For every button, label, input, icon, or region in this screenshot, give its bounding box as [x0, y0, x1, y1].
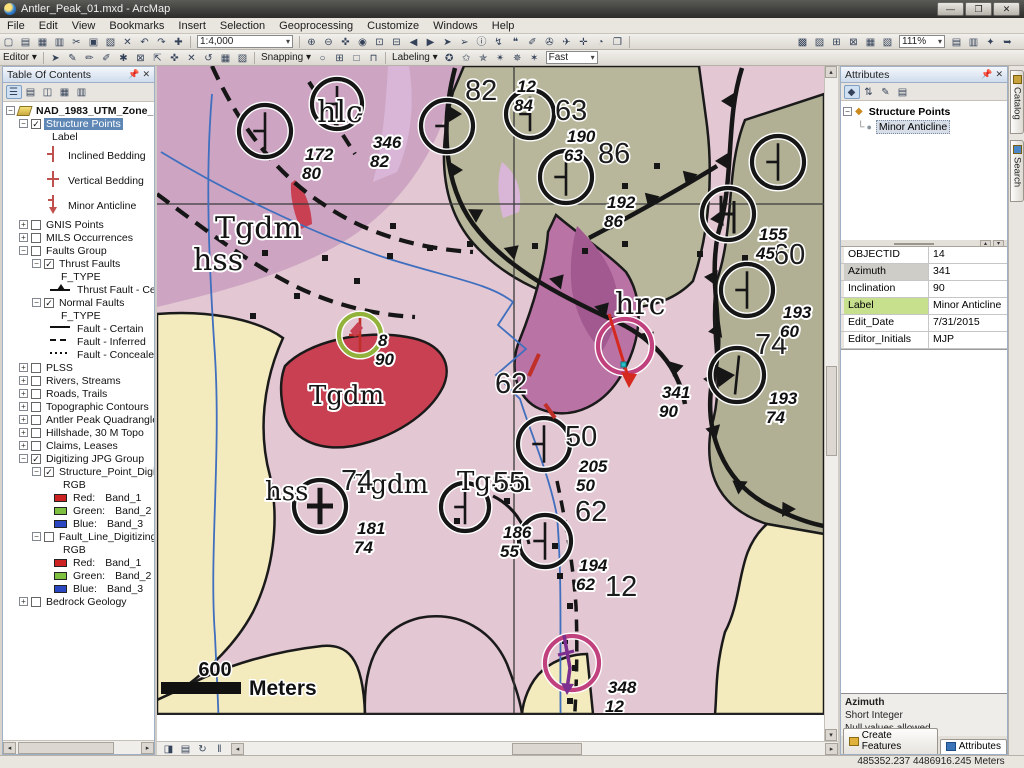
claim-marker — [572, 665, 578, 671]
visibility-checkbox[interactable] — [31, 246, 41, 256]
field-value-cell[interactable]: 14 — [929, 247, 1007, 263]
list-by-selection-icon[interactable]: ▦ — [57, 85, 73, 99]
field-options-icon[interactable]: ✎ — [878, 85, 894, 99]
image-analysis-icon[interactable]: ▧ — [880, 35, 896, 49]
menu-edit[interactable]: Edit — [32, 19, 65, 33]
visibility-checkbox[interactable] — [31, 428, 41, 438]
field-value-cell[interactable]: Minor Anticline — [929, 298, 1007, 314]
snap-vertex-dot — [621, 362, 626, 367]
toc-options-icon[interactable]: ▥ — [74, 85, 90, 99]
map-scale-combo[interactable]: 1:4,000 ▾ — [197, 35, 293, 48]
collapse-icon[interactable]: − — [32, 259, 41, 268]
strike-dip-label: 74 — [766, 408, 785, 427]
toc-item-faults-group[interactable]: −Faults Group — [3, 244, 154, 257]
toc-item-label[interactable]: Inclined Bedding — [66, 150, 148, 162]
field-name-cell[interactable]: OBJECTID — [841, 247, 929, 263]
table-of-contents-panel: Table Of Contents 📌 ✕ ☰▤◫▦▥ −NAD_1983_UT… — [2, 66, 155, 755]
scroll-right-icon[interactable]: ▸ — [141, 742, 154, 754]
field-value-cell[interactable]: MJP — [929, 332, 1007, 348]
claim-marker — [294, 293, 300, 299]
endpoint-arc-icon[interactable]: ✐ — [98, 51, 114, 65]
identify-icon[interactable]: ⓘ — [474, 35, 490, 49]
copy-icon[interactable]: ▣ — [86, 35, 102, 49]
toc-item-plss[interactable]: +PLSS — [3, 361, 154, 374]
attribute-row-label[interactable]: LabelMinor Anticline — [841, 298, 1007, 315]
section-number-label: 63 — [555, 95, 587, 127]
maximize-button[interactable]: ❐ — [965, 2, 992, 16]
strike-dip-label: 62 — [576, 575, 595, 594]
visibility-checkbox[interactable]: ✓ — [31, 119, 41, 129]
label-manager-icon[interactable]: ✪ — [441, 51, 457, 65]
toc-item-label[interactable]: Hillshade, 30 M Topo — [44, 427, 146, 439]
toc-item-structure-point-digitizing-jpg[interactable]: −✓Structure_Point_Digitizing.jpg — [3, 465, 154, 478]
visibility-checkbox[interactable]: ✓ — [44, 298, 54, 308]
toc-item-green-[interactable]: Green:Band_2 — [3, 569, 154, 582]
visibility-checkbox[interactable]: ✓ — [44, 467, 54, 477]
expand-icon[interactable]: + — [19, 363, 28, 372]
pin-icon[interactable]: 📌 — [981, 69, 992, 80]
field-value-cell[interactable]: 341 — [929, 264, 1007, 280]
fixed-zoom-out-icon[interactable]: ⊟ — [389, 35, 405, 49]
model-builder-icon[interactable]: ⊠ — [846, 35, 862, 49]
toc-item-green-[interactable]: Green:Band_2 — [3, 504, 154, 517]
attribute-row-editor_initials[interactable]: Editor_InitialsMJP — [841, 332, 1007, 349]
paste-icon[interactable]: ▧ — [103, 35, 119, 49]
pause-drawing-icon[interactable]: ‖ — [212, 742, 228, 756]
claim-marker — [262, 250, 268, 256]
find-icon[interactable]: ✇ — [542, 35, 558, 49]
expand-up-icon[interactable]: ▴ — [980, 240, 991, 247]
map-canvas[interactable]: hlcTgdmhsshrcTgdmhssTgdmTgam826386607462… — [157, 66, 824, 741]
tab-catalog[interactable]: Catalog — [1010, 70, 1024, 134]
vertex-snap-icon[interactable]: □ — [349, 51, 365, 65]
attribute-row-objectid[interactable]: OBJECTID14 — [841, 247, 1007, 264]
edit-annotation-icon[interactable]: ✎ — [64, 51, 80, 65]
band-name: Band_3 — [107, 583, 143, 595]
close-icon[interactable]: ✕ — [142, 69, 150, 80]
toc-item-structure-points[interactable]: −✓Structure Points — [3, 117, 154, 130]
zoom-out-icon[interactable]: ⊖ — [321, 35, 337, 49]
list-by-visibility-icon[interactable]: ◫ — [40, 85, 56, 99]
menu-selection[interactable]: Selection — [213, 19, 272, 33]
toc-item-label[interactable]: Structure Points — [44, 118, 123, 130]
pause-labeling-icon[interactable]: ✵ — [509, 51, 525, 65]
lock-raster-icon[interactable]: ✦ — [983, 35, 999, 49]
attributes-panel: Attributes 📌 ✕ ◆⇅✎▤ − ◆ Structure Points… — [840, 66, 1008, 755]
label-weight-icon[interactable]: ✯ — [475, 51, 491, 65]
zoom-in-icon[interactable]: ⊕ — [304, 35, 320, 49]
toc-item-label[interactable]: RGB — [61, 479, 88, 491]
toc-item-rgb[interactable]: RGB — [3, 543, 154, 556]
red-band-swatch — [54, 494, 67, 502]
toc-item-label[interactable]: Minor Anticline — [66, 200, 138, 212]
section-number-label: 12 — [605, 571, 637, 603]
edit-tool-icon[interactable]: ➤ — [47, 51, 63, 65]
collapse-icon[interactable]: − — [32, 467, 41, 476]
toc-item-blue-[interactable]: Blue:Band_3 — [3, 582, 154, 595]
toc-item-label[interactable]: Red: — [71, 492, 97, 504]
green-band-swatch — [54, 507, 67, 515]
fixed-zoom-in-icon[interactable]: ⊡ — [372, 35, 388, 49]
attributes-feature-label[interactable]: Minor Anticline — [876, 120, 950, 134]
undo-icon[interactable]: ↶ — [137, 35, 153, 49]
toc-item-f-type[interactable]: F_TYPE — [3, 270, 154, 283]
strike-dip-label: 74 — [354, 538, 373, 557]
layout-options-icon[interactable]: ▤ — [895, 85, 911, 99]
print-icon[interactable]: ▥ — [52, 35, 68, 49]
label-engine-combo[interactable]: Fast ▾ — [546, 51, 598, 64]
field-name-cell[interactable]: Inclination — [841, 281, 929, 297]
menu-help[interactable]: Help — [485, 19, 522, 33]
viewer-window-icon[interactable]: ❐ — [610, 35, 626, 49]
toc-item-minor-anticline[interactable]: Minor Anticline — [3, 193, 154, 218]
collapse-icon[interactable]: − — [32, 298, 41, 307]
toc-item-label[interactable]: Digitizing JPG Group — [44, 453, 146, 465]
map-hscroll-thumb[interactable] — [512, 743, 582, 755]
toc-item-label[interactable]: Thrust Faults — [57, 258, 122, 270]
raster-cleanup-icon[interactable]: ▥ — [966, 35, 982, 49]
expand-icon[interactable]: + — [19, 415, 28, 424]
toc-item-label[interactable]: Label — [50, 131, 80, 143]
toc-item-vertical-bedding[interactable]: Vertical Bedding — [3, 168, 154, 193]
minimize-button[interactable]: — — [937, 2, 964, 16]
toc-item-inclined-bedding[interactable]: Inclined Bedding — [3, 143, 154, 168]
attributes-tree-feature[interactable]: └ ● Minor Anticline — [843, 119, 1005, 134]
refresh-view-icon[interactable]: ↻ — [195, 742, 211, 756]
close-icon[interactable]: ✕ — [995, 69, 1003, 80]
pan-hand-icon[interactable]: ✜ — [338, 35, 354, 49]
toc-item-label[interactable]: Green: — [71, 505, 107, 517]
catalog-window-icon[interactable]: ▩ — [795, 35, 811, 49]
scroll-left-icon[interactable]: ◂ — [231, 743, 244, 755]
raster-paint-icon[interactable]: ▤ — [949, 35, 965, 49]
menu-insert[interactable]: Insert — [171, 19, 213, 33]
hyperlink-icon[interactable]: ↯ — [491, 35, 507, 49]
toc-item-label[interactable]: Red: — [71, 557, 97, 569]
menu-customize[interactable]: Customize — [360, 19, 426, 33]
find-route-icon[interactable]: ✈ — [559, 35, 575, 49]
new-map-icon[interactable]: ▢ — [1, 35, 17, 49]
end-snap-icon[interactable]: ⊞ — [332, 51, 348, 65]
feature-dot-icon: ● — [866, 122, 871, 132]
menu-bookmarks[interactable]: Bookmarks — [102, 19, 171, 33]
toc-item-thrust-fault-certain[interactable]: Thrust Fault - Certain — [3, 283, 154, 296]
list-by-drawing-order-icon[interactable]: ☰ — [6, 85, 22, 99]
vertex-tool-icon[interactable]: ✱ — [115, 51, 131, 65]
select-features-icon[interactable]: ➤ — [440, 35, 456, 49]
toc-item-label[interactable]: Green: — [71, 570, 107, 582]
toc-item-label[interactable]: Structure_Point_Digitizing.jpg — [57, 466, 154, 478]
menu-windows[interactable]: Windows — [426, 19, 485, 33]
claim-marker — [322, 255, 328, 261]
save-icon[interactable]: ▦ — [35, 35, 51, 49]
toc-item-nad-1983-utm-zone-11n[interactable]: −NAD_1983_UTM_Zone_11N — [3, 104, 154, 117]
claim-marker — [454, 518, 460, 524]
toc-item-label[interactable]: Bedrock Geology — [44, 596, 129, 608]
toc-item-antler-peak-quadrangle[interactable]: +Antler Peak Quadrangle — [3, 413, 154, 426]
close-button[interactable]: ✕ — [993, 2, 1020, 16]
layout-view-icon[interactable]: ▤ — [178, 742, 194, 756]
menu-geoprocessing[interactable]: Geoprocessing — [272, 19, 360, 33]
toc-item-label[interactable]: GNIS Points — [44, 219, 106, 231]
field-name-cell[interactable]: Edit_Date — [841, 315, 929, 331]
attributes-splitbar[interactable]: ▴ ▾ — [841, 239, 1007, 247]
select-elements-icon[interactable]: ➢ — [457, 35, 473, 49]
toc-item-label[interactable]: Fault_Line_Digitizing.jpg — [57, 531, 154, 543]
field-name-cell[interactable]: Editor_Initials — [841, 332, 929, 348]
redo-icon[interactable]: ↷ — [154, 35, 170, 49]
toc-item-label[interactable]: NAD_1983_UTM_Zone_11N — [34, 105, 154, 117]
toc-item-label[interactable]: Fault - Inferred — [75, 336, 148, 348]
split-icon[interactable]: ✕ — [183, 51, 199, 65]
arcmap-app-icon — [4, 3, 16, 15]
visibility-checkbox[interactable] — [31, 376, 41, 386]
field-name-cell[interactable]: Azimuth — [841, 264, 929, 280]
strike-dip-label: 172 — [305, 145, 334, 164]
toc-item-fault-concealed[interactable]: Fault - Concealed — [3, 348, 154, 361]
pin-icon[interactable]: 📌 — [128, 69, 139, 80]
toc-item-label[interactable]: Claims, Leases — [44, 440, 120, 452]
toc-item-red-[interactable]: Red:Band_1 — [3, 491, 154, 504]
raster-zoom-combo[interactable]: 111% ▾ — [899, 35, 945, 48]
delete-icon[interactable]: ✕ — [120, 35, 136, 49]
lock-labels-icon[interactable]: ✴ — [492, 51, 508, 65]
point-snap-icon[interactable]: ○ — [315, 51, 331, 65]
attributes-tree-layer[interactable]: − ◆ Structure Points — [843, 104, 1005, 119]
attributes-window-icon[interactable]: ▦ — [217, 51, 233, 65]
map-vertical-scrollbar[interactable]: ▴ ▾ — [824, 66, 838, 741]
expand-icon[interactable]: + — [19, 402, 28, 411]
cut-icon[interactable]: ✂ — [69, 35, 85, 49]
claim-marker — [390, 223, 396, 229]
title-bar[interactable]: Antler_Peak_01.mxd - ArcMap — ❐ ✕ — [0, 0, 1024, 18]
next-extent-icon[interactable]: ▶ — [423, 35, 439, 49]
strike-dip-label: 155 — [759, 225, 788, 244]
scroll-left-icon[interactable]: ◂ — [3, 742, 16, 754]
straight-segment-icon[interactable]: ✏ — [81, 51, 97, 65]
toc-item-claims-leases[interactable]: +Claims, Leases — [3, 439, 154, 452]
data-view-icon[interactable]: ◨ — [161, 742, 177, 756]
trace-icon[interactable]: ⊠ — [132, 51, 148, 65]
claim-marker — [622, 241, 628, 247]
open-icon[interactable]: ▤ — [18, 35, 34, 49]
collapse-icon[interactable]: − — [843, 107, 852, 116]
field-value-cell[interactable]: 90 — [929, 281, 1007, 297]
claim-marker — [427, 245, 433, 251]
toc-item-rivers-streams[interactable]: +Rivers, Streams — [3, 374, 154, 387]
field-value-cell[interactable]: 7/31/2015 — [929, 315, 1007, 331]
editor-menu[interactable]: Editor ▾ — [0, 52, 40, 63]
section-number-label: 86 — [598, 138, 630, 170]
edge-snap-icon[interactable]: ⊓ — [366, 51, 382, 65]
visibility-checkbox[interactable]: ✓ — [31, 454, 41, 464]
full-extent-icon[interactable]: ◉ — [355, 35, 371, 49]
add-data-icon[interactable]: ✚ — [171, 35, 187, 49]
time-slider-icon[interactable]: ◔ — [593, 35, 609, 49]
toc-item-label[interactable]: F_TYPE — [59, 310, 103, 322]
claim-marker — [467, 241, 473, 247]
toc-item-red-[interactable]: Red:Band_1 — [3, 556, 154, 569]
toc-item-mils-occurrences[interactable]: +MILS Occurrences — [3, 231, 154, 244]
search-icon — [1013, 145, 1022, 154]
visibility-checkbox[interactable] — [31, 233, 41, 243]
rotate-icon[interactable]: ↺ — [200, 51, 216, 65]
collapse-icon[interactable]: − — [6, 106, 15, 115]
visibility-checkbox[interactable]: ✓ — [44, 259, 54, 269]
tab-attributes[interactable]: Attributes — [940, 739, 1007, 754]
coordinate-readout: 485352.237 4486916.245 Meters — [840, 756, 1022, 768]
expand-icon[interactable]: + — [19, 233, 28, 242]
toc-item-roads-trails[interactable]: +Roads, Trails — [3, 387, 154, 400]
toc-item-gnis-points[interactable]: +GNIS Points — [3, 218, 154, 231]
toc-item-fault-certain[interactable]: Fault - Certain — [3, 322, 154, 335]
view-unplaced-icon[interactable]: ✶ — [526, 51, 542, 65]
attributes-layer-label[interactable]: Structure Points — [867, 106, 953, 118]
toc-item-label[interactable]: Fault - Concealed — [75, 349, 154, 361]
toc-item-label[interactable]: Normal Faults — [57, 297, 126, 309]
toc-item-digitizing-jpg-group[interactable]: −✓Digitizing JPG Group — [3, 452, 154, 465]
red-band-swatch — [54, 559, 67, 567]
collapse-icon[interactable]: − — [19, 119, 28, 128]
toc-item-label[interactable]: PLSS — [44, 362, 75, 374]
toc-scroll-thumb[interactable] — [18, 742, 114, 754]
scroll-right-icon[interactable]: ▸ — [825, 743, 838, 755]
band-name: Band_1 — [105, 492, 141, 504]
export-raster-icon[interactable]: ➥ — [1000, 35, 1016, 49]
visibility-checkbox[interactable] — [31, 363, 41, 373]
attribute-row-edit_date[interactable]: Edit_Date7/31/2015 — [841, 315, 1007, 332]
toc-item-label[interactable]: Faults Group — [44, 245, 109, 257]
tab-search[interactable]: Search — [1010, 140, 1024, 202]
visibility-checkbox[interactable] — [31, 220, 41, 230]
strike-dip-label: 193 — [783, 303, 812, 322]
strike-dip-label: 12 — [517, 77, 536, 96]
toc-item-blue-[interactable]: Blue:Band_3 — [3, 517, 154, 530]
move-icon[interactable]: ✜ — [166, 51, 182, 65]
expand-icon[interactable]: + — [19, 220, 28, 229]
toc-item-label[interactable]: RGB — [61, 544, 88, 556]
visibility-checkbox[interactable] — [31, 415, 41, 425]
menu-file[interactable]: File — [0, 19, 32, 33]
go-to-xy-icon[interactable]: ✛ — [576, 35, 592, 49]
strike-dip-label: 86 — [604, 212, 623, 231]
toc-item-label[interactable]: Antler Peak Quadrangle — [44, 414, 154, 426]
strike-dip-label: 63 — [564, 146, 583, 165]
measure-icon[interactable]: ✐ — [525, 35, 541, 49]
map-vscroll-thumb[interactable] — [826, 366, 837, 456]
toc-item-label[interactable]: Roads, Trails — [44, 388, 109, 400]
toc-item-label[interactable]: F_TYPE — [59, 271, 103, 283]
attribute-row-azimuth[interactable]: Azimuth341 — [841, 264, 1007, 281]
menu-view[interactable]: View — [65, 19, 103, 33]
scroll-up-icon[interactable]: ▴ — [825, 66, 837, 78]
strike-dip-label: 192 — [607, 193, 636, 212]
strike-dip-label: 193 — [769, 389, 798, 408]
visibility-checkbox[interactable] — [31, 597, 41, 607]
toc-header[interactable]: Table Of Contents 📌 ✕ — [3, 67, 154, 83]
strike-dip-label: 80 — [302, 164, 321, 183]
attributes-header[interactable]: Attributes 📌 ✕ — [841, 67, 1007, 83]
expand-icon[interactable]: + — [19, 441, 28, 450]
scalebar-value: 600 — [198, 659, 231, 681]
strike-dip-label: 84 — [514, 96, 533, 115]
expand-down-icon[interactable]: ▾ — [993, 240, 1004, 247]
toc-item-normal-faults[interactable]: −✓Normal Faults — [3, 296, 154, 309]
collapse-icon[interactable]: − — [32, 532, 41, 541]
expand-icon[interactable]: + — [19, 597, 28, 606]
toc-item-bedrock-geology[interactable]: +Bedrock Geology — [3, 595, 154, 608]
search-window-icon[interactable]: ▨ — [812, 35, 828, 49]
attribute-table: OBJECTID14Azimuth341Inclination90LabelMi… — [841, 247, 1007, 350]
toc-item-label[interactable]: Vertical Bedding — [66, 175, 146, 187]
html-popup-icon[interactable]: ❝ — [508, 35, 524, 49]
scroll-down-icon[interactable]: ▾ — [825, 729, 837, 741]
label-priority-icon[interactable]: ✩ — [458, 51, 474, 65]
visibility-checkbox[interactable] — [31, 441, 41, 451]
toc-item-rgb[interactable]: RGB — [3, 478, 154, 491]
toc-item-fault-line-digitizing-jpg[interactable]: −Fault_Line_Digitizing.jpg — [3, 530, 154, 543]
claim-marker — [552, 543, 558, 549]
section-number-label: 55 — [493, 467, 525, 499]
sort-fields-icon[interactable]: ⇅ — [861, 85, 877, 99]
toc-item-f-type[interactable]: F_TYPE — [3, 309, 154, 322]
strike-dip-label: 348 — [608, 678, 637, 697]
expand-icon[interactable]: + — [19, 389, 28, 398]
field-name-cell[interactable]: Label — [841, 298, 929, 314]
toc-item-label[interactable]: Fault - Certain — [75, 323, 146, 335]
collapse-icon[interactable]: − — [19, 454, 28, 463]
toc-item-label[interactable]: Blue: — [71, 583, 99, 595]
toc-title: Table Of Contents — [7, 69, 91, 81]
tab-create-features[interactable]: Create Features — [843, 728, 938, 754]
visibility-checkbox[interactable] — [44, 532, 54, 542]
strike-dip-label: 346 — [373, 133, 402, 152]
section-number-label: 50 — [565, 421, 597, 453]
claim-marker — [557, 573, 563, 579]
python-window-icon[interactable]: ▦ — [863, 35, 879, 49]
toc-item-thrust-faults[interactable]: −✓Thrust Faults — [3, 257, 154, 270]
toc-item-label[interactable]: Blue: — [71, 518, 99, 530]
section-number-label: 74 — [341, 465, 373, 497]
expand-icon[interactable]: + — [19, 428, 28, 437]
toc-item-label[interactable]: Label — [3, 130, 154, 143]
toc-item-fault-inferred[interactable]: Fault - Inferred — [3, 335, 154, 348]
toolbox-icon[interactable]: ⊞ — [829, 35, 845, 49]
toc-item-topographic-contours[interactable]: +Topographic Contours — [3, 400, 154, 413]
list-by-source-icon[interactable]: ▤ — [23, 85, 39, 99]
label-engine-value: Fast — [549, 52, 568, 63]
strike-dip-label: 55 — [500, 542, 519, 561]
reshape-icon[interactable]: ⇱ — [149, 51, 165, 65]
toc-item-label[interactable]: MILS Occurrences — [44, 232, 135, 244]
toc-item-label[interactable]: Topographic Contours — [44, 401, 151, 413]
toc-item-label[interactable]: Rivers, Streams — [44, 375, 123, 387]
visibility-checkbox[interactable] — [31, 389, 41, 399]
expand-icon[interactable]: + — [19, 376, 28, 385]
strike-dip-label: 205 — [578, 457, 608, 476]
identify-style-icon[interactable]: ◆ — [844, 85, 860, 99]
labeling-menu[interactable]: Labeling ▾ — [389, 52, 441, 63]
attribute-row-inclination[interactable]: Inclination90 — [841, 281, 1007, 298]
previous-extent-icon[interactable]: ◀ — [406, 35, 422, 49]
toc-horizontal-scrollbar[interactable]: ◂ ▸ — [3, 740, 154, 754]
visibility-checkbox[interactable] — [31, 402, 41, 412]
collapse-icon[interactable]: − — [19, 246, 28, 255]
snapping-menu[interactable]: Snapping ▾ — [258, 52, 314, 63]
sketch-properties-icon[interactable]: ▧ — [234, 51, 250, 65]
toc-item-hillshade-30-m-topo[interactable]: +Hillshade, 30 M Topo — [3, 426, 154, 439]
toc-item-label[interactable]: Thrust Fault - Certain — [75, 284, 154, 296]
